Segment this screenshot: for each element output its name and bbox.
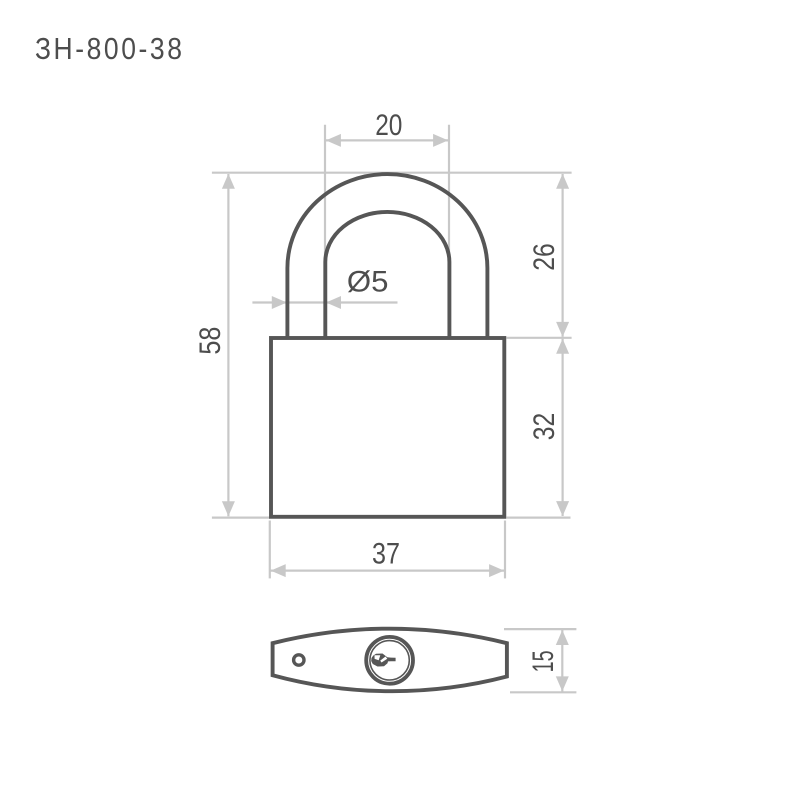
- svg-text:26: 26: [528, 243, 561, 271]
- svg-text:15: 15: [527, 650, 560, 672]
- svg-text:20: 20: [375, 109, 402, 142]
- svg-text:ЗН-800-38: ЗН-800-38: [35, 31, 185, 66]
- svg-text:58: 58: [194, 327, 227, 355]
- svg-text:32: 32: [528, 413, 561, 441]
- svg-text:Ø5: Ø5: [347, 266, 389, 299]
- svg-text:37: 37: [372, 537, 400, 570]
